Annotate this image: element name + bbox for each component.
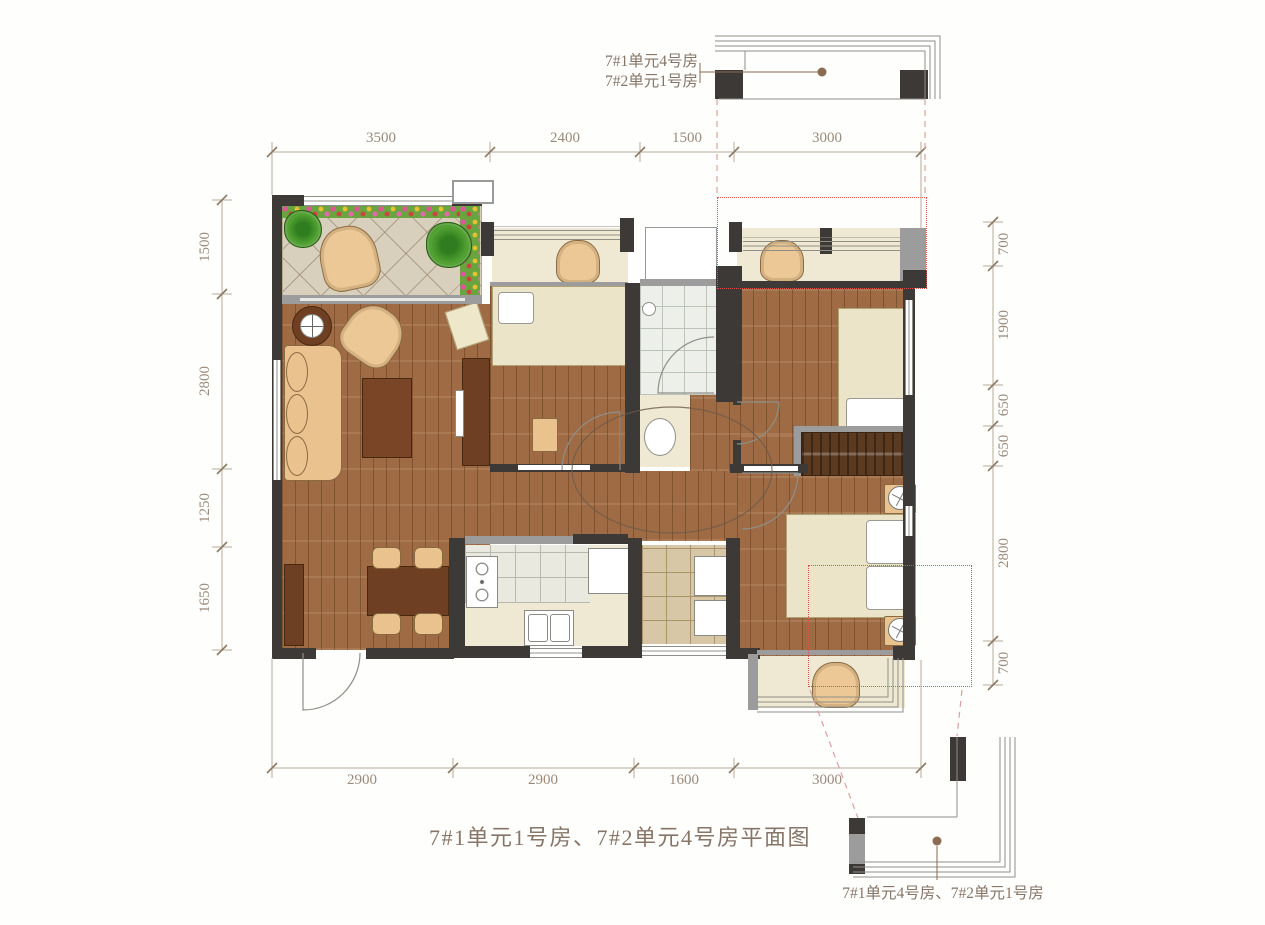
dining-chair (372, 547, 401, 569)
window-kitchen (530, 646, 582, 658)
dining-chair (414, 547, 443, 569)
wall-hall-bedroom3-a (733, 395, 741, 405)
table-plant (300, 314, 324, 338)
wash-basin (644, 418, 676, 456)
terrace-plant-2 (426, 222, 472, 268)
bottom-detail-frame (853, 737, 1015, 877)
window-master (905, 506, 913, 536)
bottom-detail-column-top (950, 737, 966, 781)
wardrobe (801, 432, 914, 476)
sliding-door-terrace (300, 298, 465, 301)
sliding-door-bedroom2 (518, 465, 590, 470)
dim-top-3: 1500 (665, 130, 709, 146)
dim-right-5: 2800 (996, 531, 1012, 575)
bottom-detail-label: 7#1单元4号房、7#2单元1号房 (838, 884, 1048, 903)
coffee-table (362, 378, 412, 458)
red-dotted-balcony-extent (717, 197, 927, 289)
window-terrace-top (304, 196, 452, 206)
floor-plan-canvas: 7#1单元4号房 7#2单元1号房 7#1单元4号房、7#2单元1号房 7#1单… (0, 0, 1265, 925)
bottom-detail-column-left-base (849, 864, 865, 874)
leader-dot-bottom (933, 837, 942, 846)
tv (455, 390, 464, 437)
sofa-cushion (286, 436, 308, 476)
fridge (588, 548, 630, 594)
dim-top-4: 3000 (805, 130, 849, 146)
dim-bottom-1: 2900 (340, 772, 384, 788)
water-heater (694, 600, 730, 636)
shower-head (642, 302, 656, 316)
balcony-pillar (481, 222, 494, 256)
sliding-door-master (744, 466, 798, 471)
wall-jog (452, 180, 494, 204)
bottom-detail-column-left-cap (849, 818, 865, 834)
plan-caption: 7#1单元1号房、7#2单元4号房平面图 (428, 820, 812, 852)
wall-kitchen-left (449, 538, 465, 650)
top-detail-column-right (900, 70, 928, 99)
wall-top-corner (272, 195, 304, 206)
wall-bottom-left (272, 648, 316, 659)
window-utility (642, 644, 726, 656)
top-detail-label-line2: 7#2单元1号房 (560, 72, 698, 91)
wall-kitchen-bottom-b (582, 646, 642, 658)
wall-kitchen-utility (628, 538, 642, 652)
bedroom2-balcony-chair (556, 240, 600, 284)
balcony-pillar-2 (620, 218, 634, 252)
red-dotted-master-extent (808, 565, 972, 687)
leader-dot-top (818, 68, 827, 77)
wall-bottom-mid (366, 648, 454, 659)
dim-right-1: 700 (996, 222, 1012, 266)
hallway-floor (490, 471, 737, 541)
top-detail-column-left (715, 70, 743, 99)
bedroom2-balcony-railing (494, 226, 620, 240)
window-left (273, 360, 281, 480)
dining-table (367, 566, 449, 616)
shaft (645, 227, 717, 285)
dim-top-2: 2400 (543, 130, 587, 146)
wall-kitchen-top-dark (573, 534, 628, 544)
dim-left-4: 1650 (197, 576, 213, 620)
tv-cabinet (462, 358, 490, 466)
dim-bottom-2: 2900 (521, 772, 565, 788)
sink-basin-2 (550, 614, 570, 642)
dim-left-2: 2800 (197, 359, 213, 403)
terrace-plant (284, 210, 322, 248)
dim-right-2: 1900 (996, 303, 1012, 347)
wall-utility-master (726, 538, 740, 652)
dim-right-6: 700 (996, 641, 1012, 685)
dim-left-1: 1500 (197, 225, 213, 269)
stove (466, 556, 498, 608)
dining-chair (372, 613, 401, 635)
kitchen-sink (524, 610, 574, 646)
dim-right-3: 650 (996, 383, 1012, 427)
wall-kitchen-bottom-a (454, 646, 530, 658)
dim-top-1: 3500 (359, 130, 403, 146)
wall-bedroom2-bath (625, 283, 640, 473)
dim-bottom-4: 3000 (805, 772, 849, 788)
master-balcony-wall-gray (748, 654, 758, 710)
sofa-cushion (286, 394, 308, 434)
dim-bottom-3: 1600 (662, 772, 706, 788)
window-bedroom3 (905, 300, 913, 395)
sink-basin (528, 614, 548, 642)
top-detail-label-line1: 7#1单元4号房 (560, 52, 698, 71)
sofa-cushion (286, 352, 308, 392)
bedroom2-balcony-sill (490, 282, 628, 286)
entry-cabinet (284, 564, 304, 646)
washing-machine (694, 556, 730, 596)
dim-left-3: 1250 (197, 486, 213, 530)
dim-right-4: 650 (996, 424, 1012, 468)
bedroom2-pillow (498, 292, 534, 324)
dining-chair (414, 613, 443, 635)
bedroom2-nightstand (532, 418, 558, 452)
bottom-detail-column-left-gray (849, 834, 865, 864)
